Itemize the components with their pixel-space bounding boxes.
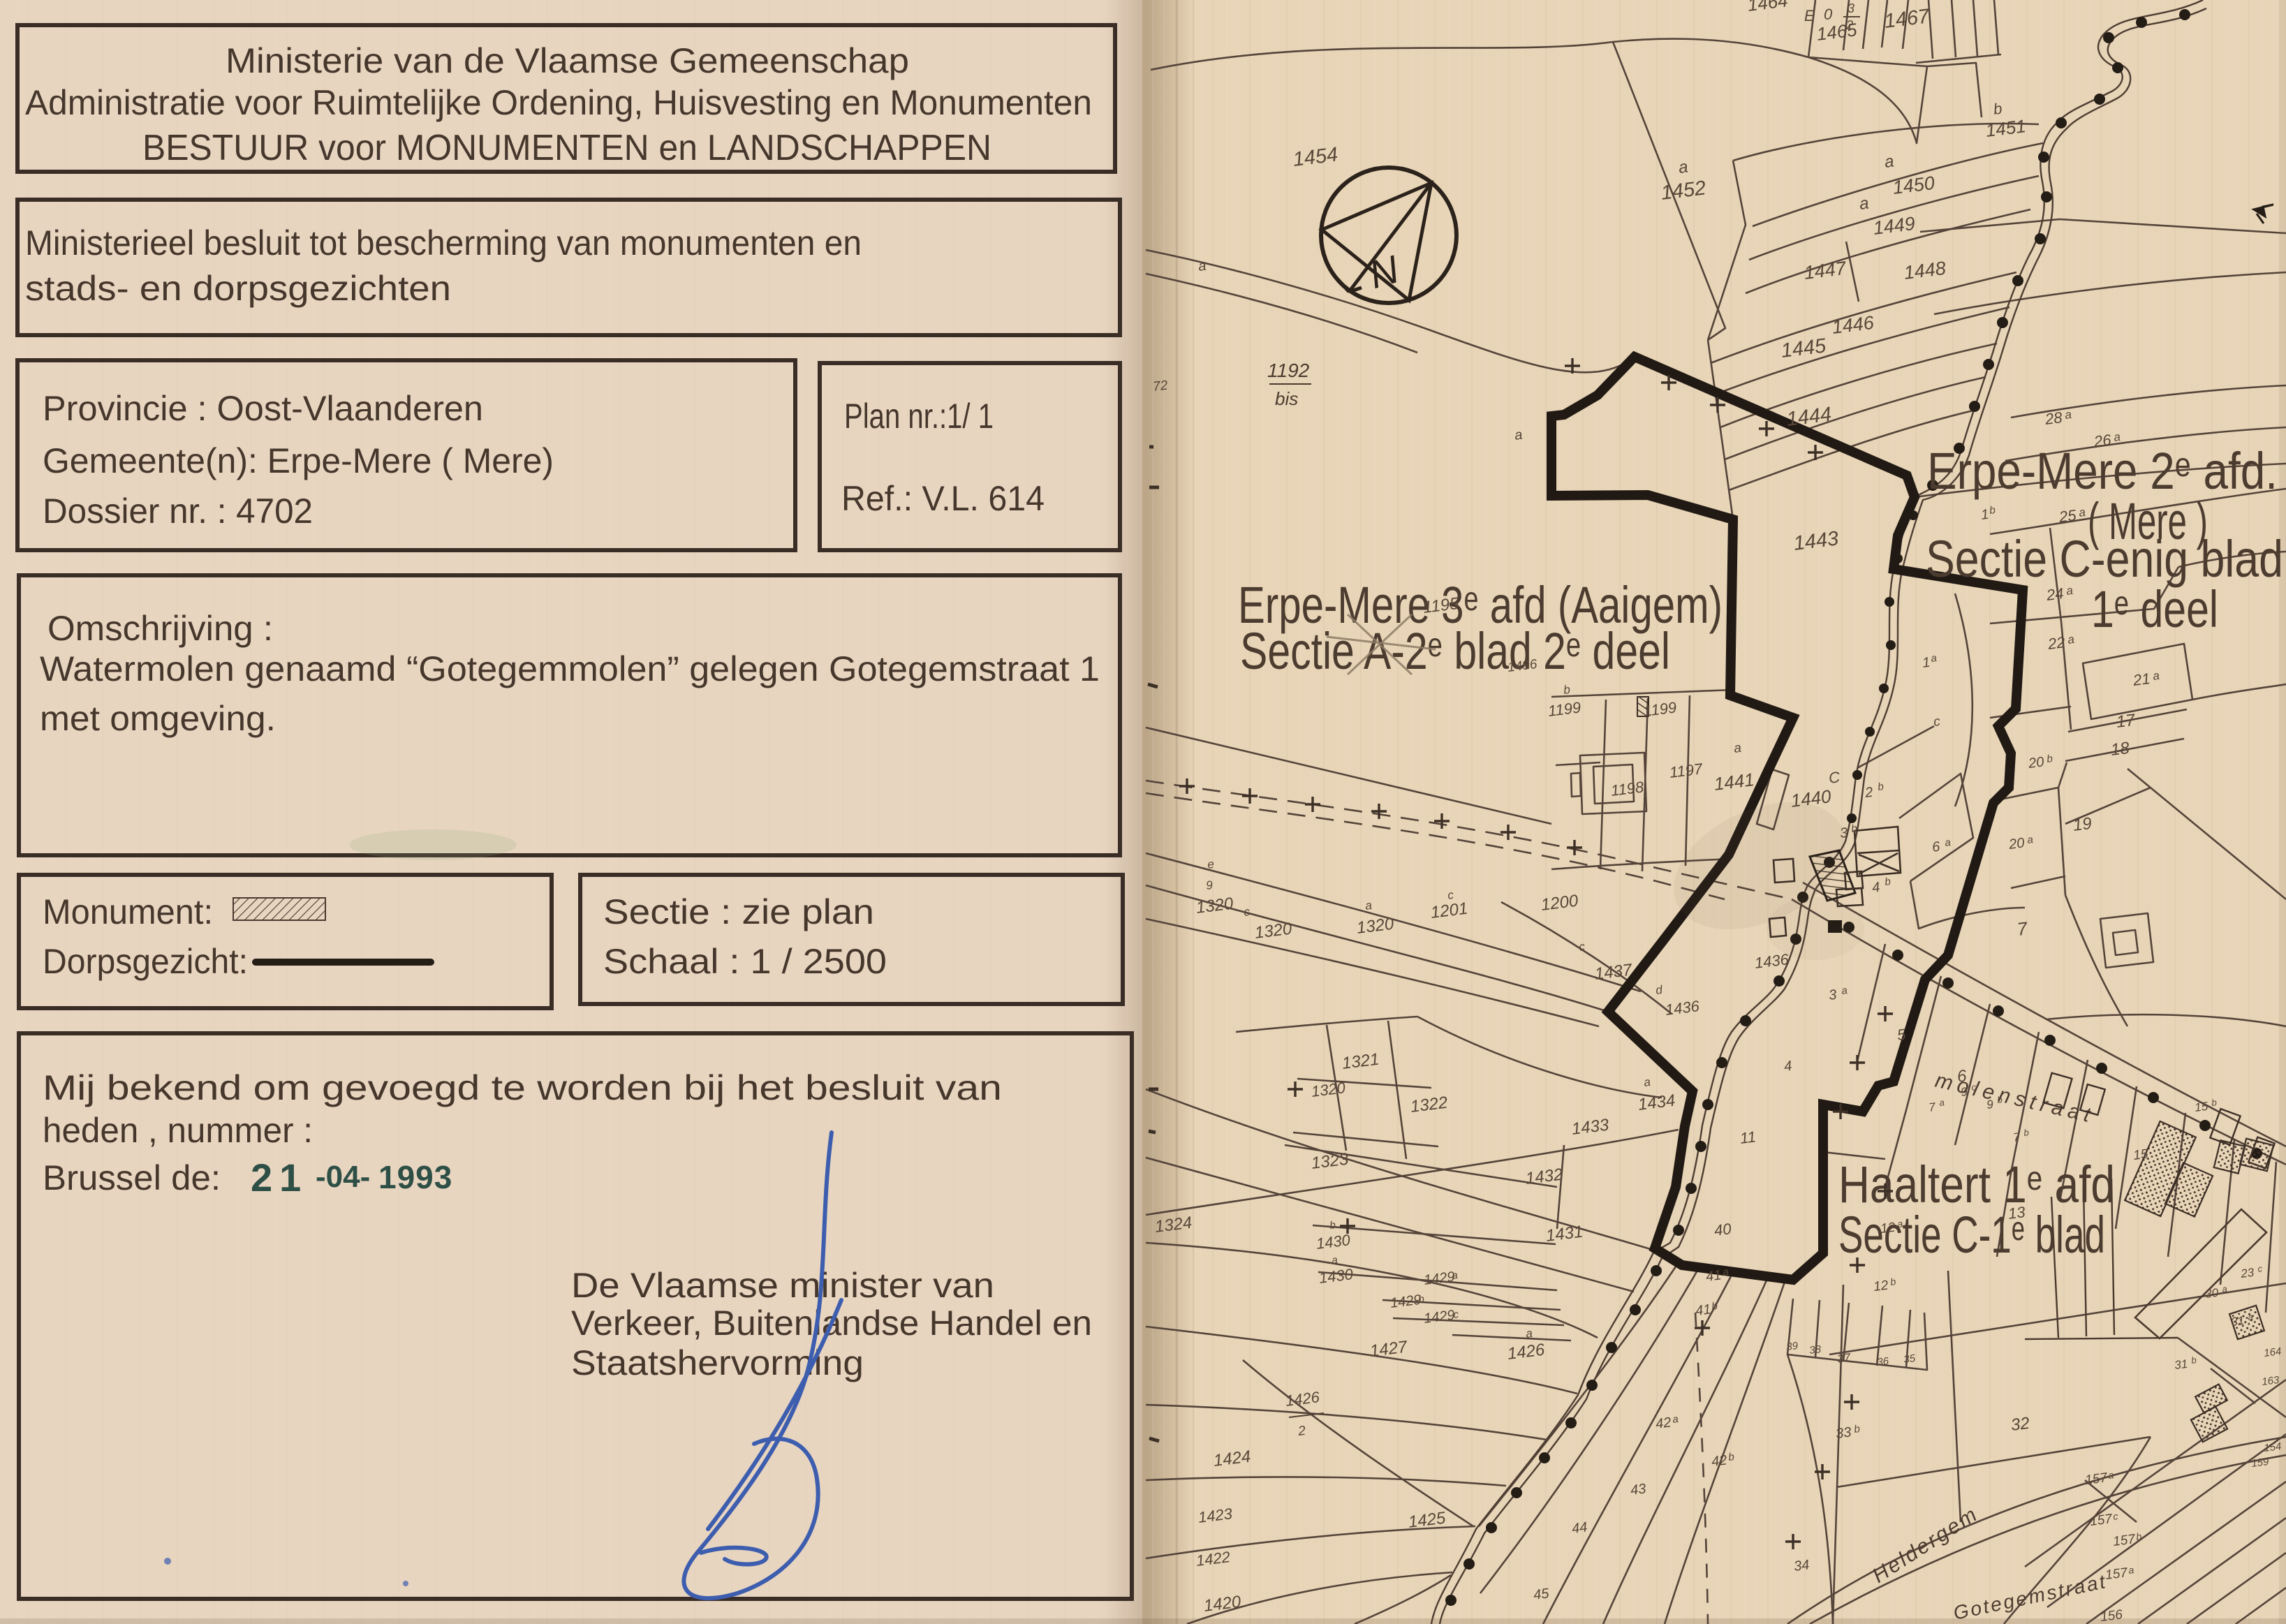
svg-text:38: 38	[1808, 1343, 1822, 1357]
svg-text:Brussel de:: Brussel de:	[43, 1158, 221, 1197]
svg-text:42: 42	[1655, 1415, 1672, 1432]
svg-text:Provincie : Oost-Vlaanderen: Provincie : Oost-Vlaanderen	[43, 389, 483, 428]
svg-text:-04-: -04-	[316, 1160, 370, 1194]
svg-text:41: 41	[1695, 1301, 1712, 1319]
svg-text:heden , nummer :: heden , nummer :	[43, 1111, 313, 1150]
svg-text:1e deel: 1e deel	[2091, 580, 2218, 638]
svg-text:163: 163	[2261, 1374, 2280, 1388]
svg-text:Administratie voor Ruimtelijke: Administratie voor Ruimtelijke Ordening,…	[25, 83, 1092, 122]
svg-text:Mij bekend om gevoegd te worde: Mij bekend om gevoegd te worden bij het …	[43, 1068, 1002, 1107]
svg-text:43: 43	[1630, 1481, 1647, 1498]
svg-text:Dorpsgezicht:: Dorpsgezicht:	[43, 942, 248, 981]
svg-text:Sectie : zie plan: Sectie : zie plan	[603, 892, 874, 931]
svg-text:157: 157	[2104, 1565, 2129, 1583]
svg-text:157: 157	[2112, 1532, 2137, 1549]
svg-text:20: 20	[2007, 835, 2026, 852]
svg-text:30: 30	[2204, 1286, 2220, 1301]
svg-text:15: 15	[2132, 1146, 2149, 1162]
svg-text:35: 35	[1903, 1352, 1916, 1366]
svg-text:Haaltert 1e afd: Haaltert 1e afd	[1838, 1156, 2115, 1213]
svg-text:bis: bis	[1275, 388, 1298, 409]
svg-text:25: 25	[2058, 506, 2078, 526]
svg-text:E: E	[1804, 7, 1815, 24]
svg-text:12: 12	[1880, 1220, 1896, 1236]
svg-text:157: 157	[2089, 1512, 2114, 1529]
svg-text:37: 37	[1836, 1351, 1852, 1366]
svg-text:15: 15	[2194, 1100, 2209, 1114]
svg-text:Gemeente(n): Erpe-Mere ( Mere): Gemeente(n): Erpe-Mere ( Mere)	[43, 441, 554, 480]
svg-text:41: 41	[1705, 1267, 1723, 1285]
svg-text:Ministerie van de Vlaamse Geme: Ministerie van de Vlaamse Gemeenschap	[226, 41, 909, 80]
svg-text:3: 3	[1848, 1, 1854, 15]
svg-text:stads- en dorpsgezichten: stads- en dorpsgezichten	[25, 269, 451, 308]
svg-text:C: C	[1828, 768, 1841, 787]
svg-text:Erpe-Mere 2e afd.: Erpe-Mere 2e afd.	[1927, 442, 2278, 500]
svg-text:1993: 1993	[378, 1159, 452, 1195]
svg-text:34: 34	[1793, 1557, 1811, 1574]
svg-text:33: 33	[1835, 1424, 1852, 1442]
svg-text:Watermolen genaamd “Gotegemmol: Watermolen genaamd “Gotegemmolen” gelege…	[40, 649, 1100, 688]
svg-text:Sectie C-enig blad: Sectie C-enig blad	[1926, 530, 2283, 588]
svg-text:De Vlaamse minister van: De Vlaamse minister van	[571, 1266, 994, 1305]
svg-text:1192: 1192	[1267, 360, 1310, 381]
svg-text:45: 45	[1533, 1586, 1551, 1603]
svg-text:11: 11	[1739, 1128, 1757, 1147]
svg-text:28: 28	[2044, 408, 2064, 428]
svg-text:13: 13	[2007, 1203, 2027, 1223]
svg-text:42: 42	[1711, 1452, 1728, 1470]
svg-text:157: 157	[2084, 1470, 2109, 1488]
svg-text:12: 12	[1873, 1278, 1889, 1294]
svg-text:21: 21	[251, 1156, 308, 1199]
svg-text:Sectie C-1e blad: Sectie C-1e blad	[1838, 1206, 2105, 1264]
svg-text:18: 18	[2109, 739, 2130, 760]
svg-text:21: 21	[2132, 670, 2151, 689]
svg-text:32: 32	[2010, 1414, 2030, 1435]
svg-text:39: 39	[1785, 1340, 1799, 1353]
svg-text:26: 26	[2093, 431, 2113, 450]
svg-text:31: 31	[2230, 1314, 2245, 1329]
svg-text:44: 44	[1571, 1519, 1588, 1537]
svg-text:Monument:: Monument:	[43, 892, 213, 931]
svg-text:Sectie A-2e blad 2e deel: Sectie A-2e blad 2e deel	[1240, 622, 1670, 680]
svg-text:BESTUUR voor MONUMENTEN en LAN: BESTUUR voor MONUMENTEN en LANDSCHAPPEN	[142, 128, 991, 168]
svg-text:22: 22	[2047, 633, 2066, 653]
svg-text:40: 40	[1713, 1220, 1733, 1239]
svg-text:19: 19	[2072, 814, 2093, 835]
svg-text:24: 24	[2045, 584, 2065, 604]
svg-text:17: 17	[2115, 711, 2137, 732]
svg-text:23: 23	[2239, 1266, 2255, 1280]
svg-text:Dossier nr. : 4702: Dossier nr. : 4702	[43, 492, 313, 531]
svg-text:Ministerieel besluit tot besch: Ministerieel besluit tot bescherming van…	[25, 223, 862, 263]
svg-text:20: 20	[2027, 754, 2045, 772]
svg-text:met omgeving.: met omgeving.	[40, 699, 276, 738]
svg-text:Schaal : 1 / 2500: Schaal : 1 / 2500	[603, 942, 887, 981]
svg-text:0: 0	[1824, 6, 1833, 23]
svg-text:36: 36	[1876, 1355, 1889, 1368]
svg-text:31: 31	[2174, 1357, 2188, 1372]
svg-text:72: 72	[1152, 378, 1169, 394]
svg-text:Ref.: V.L. 614: Ref.: V.L. 614	[841, 479, 1045, 518]
svg-text:Omschrijving :: Omschrijving :	[47, 609, 273, 648]
svg-text:Plan nr.:1/ 1: Plan nr.:1/ 1	[844, 397, 994, 436]
svg-text:159: 159	[2250, 1456, 2270, 1470]
